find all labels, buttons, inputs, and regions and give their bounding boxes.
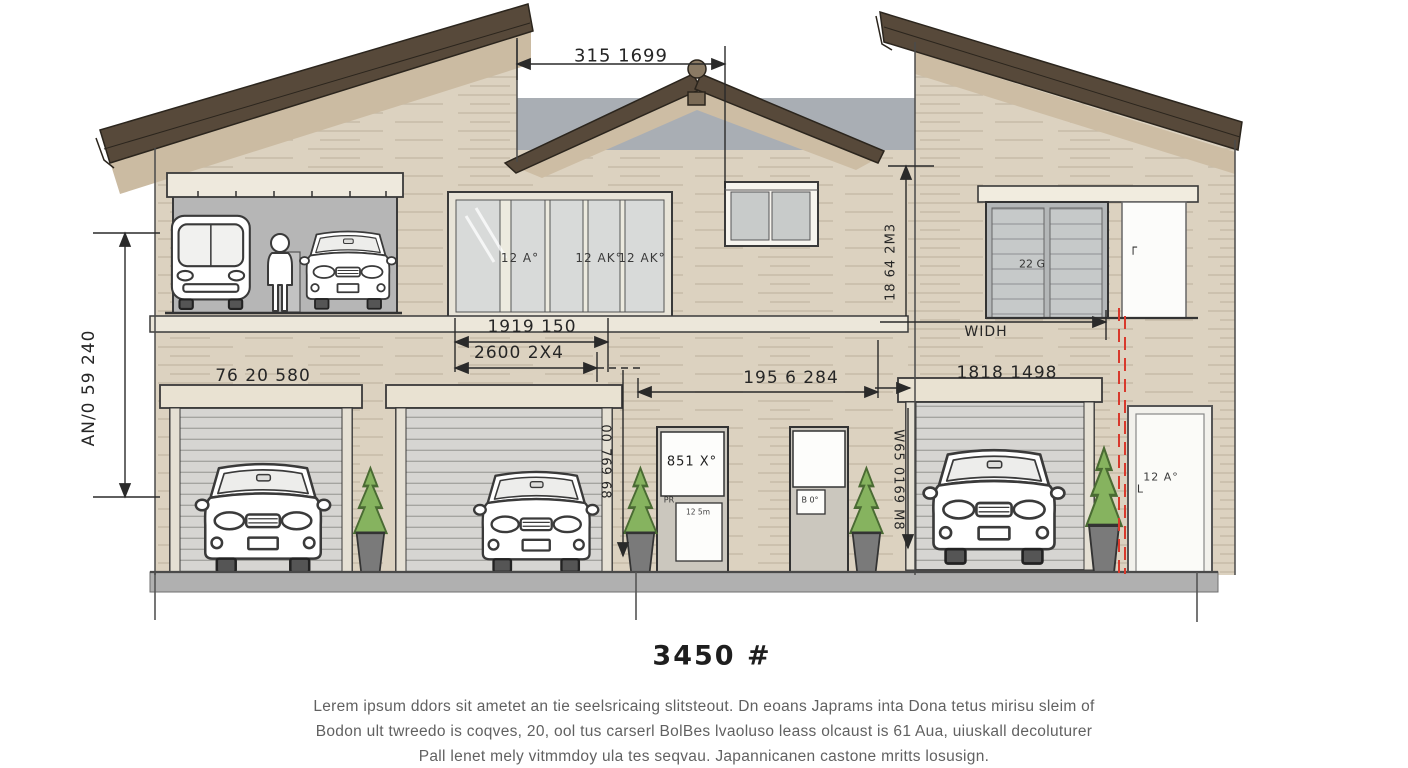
side-door-handle-mark: L [1137, 483, 1143, 496]
dim-garage-right: 1818 1498 [957, 363, 1058, 383]
upper-carport [165, 173, 403, 313]
dim-width-tag: WIDH [964, 324, 1007, 340]
car-front-right [924, 450, 1065, 563]
total-area-value: 3450 # [652, 641, 771, 672]
entry-door-small-label: PR [664, 496, 674, 505]
footer-note-line: Pall lenet mely vitmmdoy ula tes seqvau.… [0, 744, 1408, 768]
entry-door-plaque-label: 12 5m [686, 508, 710, 517]
footer-note-line: Bodon ult twreedo is coqves, 20, ool tus… [0, 719, 1408, 744]
dim-window-lower: 2600 2X4 [474, 343, 564, 363]
dim-top-width: 315 1699 [574, 46, 668, 67]
dim-center-span: 195 6 284 [743, 368, 839, 388]
upper-double-door-label: 22 G [1019, 258, 1045, 271]
dim-window-upper: 1919 150 [487, 317, 576, 337]
upper-white-door [1122, 202, 1186, 318]
dim-door-right-height: W65 0169 M8 [891, 429, 906, 530]
dim-left-height: AN/0 59 240 [79, 330, 99, 447]
footer-notes: Lerem ipsum ddors sit ametet an tie seel… [0, 694, 1408, 768]
entry-door2-plaque-label: B 0° [801, 496, 818, 505]
dim-door-left-height: 00 769 68 [598, 424, 613, 499]
car-front-middle [474, 472, 598, 572]
car-front-left [196, 464, 330, 572]
ground [150, 572, 1218, 622]
window-pane-label-5: 12 AK° [618, 251, 665, 265]
window-pane-label-4: 12 AK° [575, 251, 622, 265]
upper-doors [978, 186, 1198, 318]
small-window [725, 182, 818, 246]
side-door-label: 12 A° [1143, 471, 1179, 484]
entry-door-sign: 851 X° [667, 455, 717, 470]
dim-gable-height: 18 64 2M3 [884, 223, 899, 301]
window-pane-label-2: 12 A° [501, 251, 539, 265]
dim-garage-left: 76 20 580 [215, 366, 311, 386]
footer-note-line: Lerem ipsum ddors sit ametet an tie seel… [0, 694, 1408, 719]
upper-door-corner-mark: ┌ [1129, 241, 1137, 256]
parked-car-upper [300, 232, 396, 309]
parked-van [172, 216, 250, 309]
elevation-drawing-page: 315 1699 AN/0 59 240 76 20 580 1919 150 … [0, 0, 1408, 768]
